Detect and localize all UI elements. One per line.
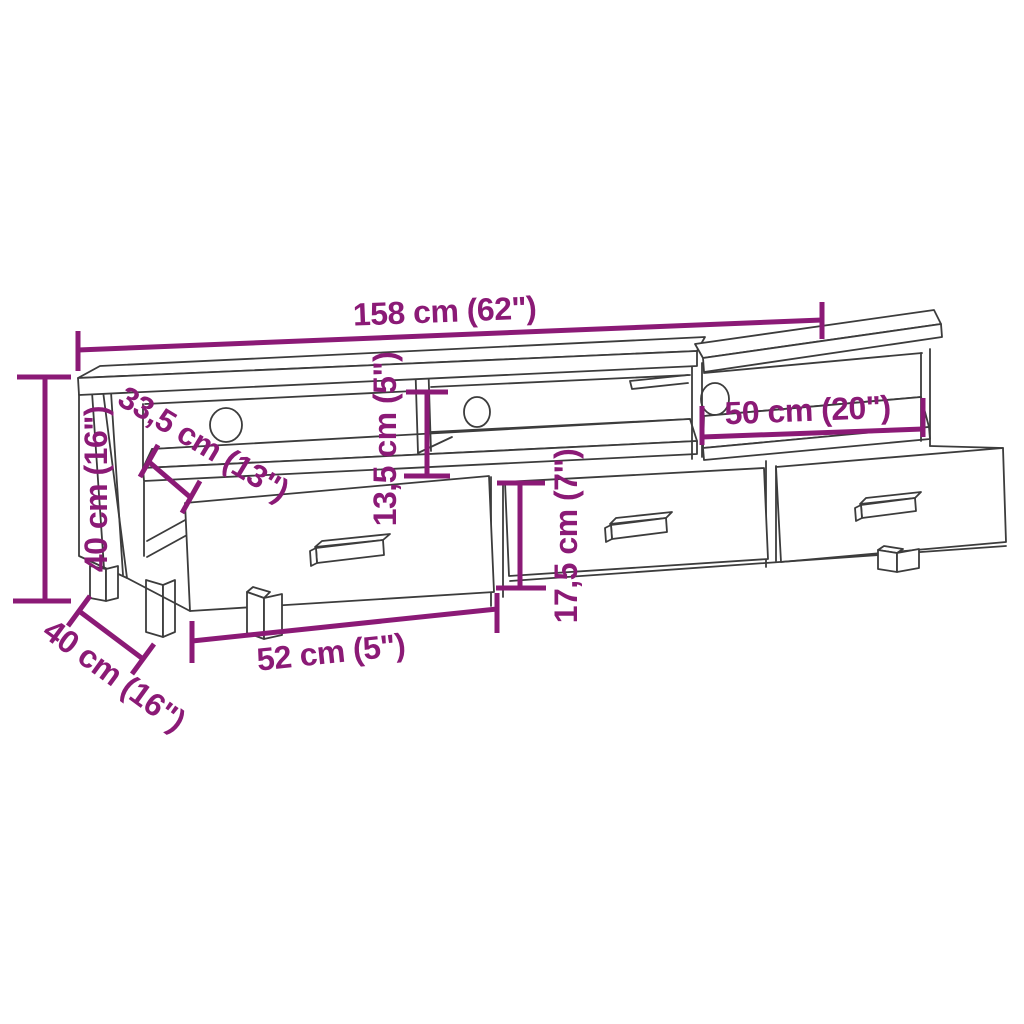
foot-right-front [878,550,897,572]
diagram-canvas: 158 cm (62") 40 cm (16") 33,5 cm (13") 1… [0,0,1024,1024]
dim-drawer-height-label: 17,5 cm (7") [548,449,584,624]
foot-right-side [897,549,919,572]
front-leg-side-face [163,580,175,637]
furniture-dimension-diagram: 158 cm (62") 40 cm (16") 33,5 cm (13") 1… [0,0,1024,1024]
dim-height-label: 40 cm (16") [78,406,114,572]
handle-left-end [310,548,317,566]
handle-right-end [855,505,862,521]
dim-total-width-label: 158 cm (62") [352,289,537,332]
dim-compartment-height-label: 13,5 cm (5") [367,352,403,527]
dim-compartment-width-label: 50 cm (20") [724,389,892,432]
handle-middle-end [605,525,612,542]
